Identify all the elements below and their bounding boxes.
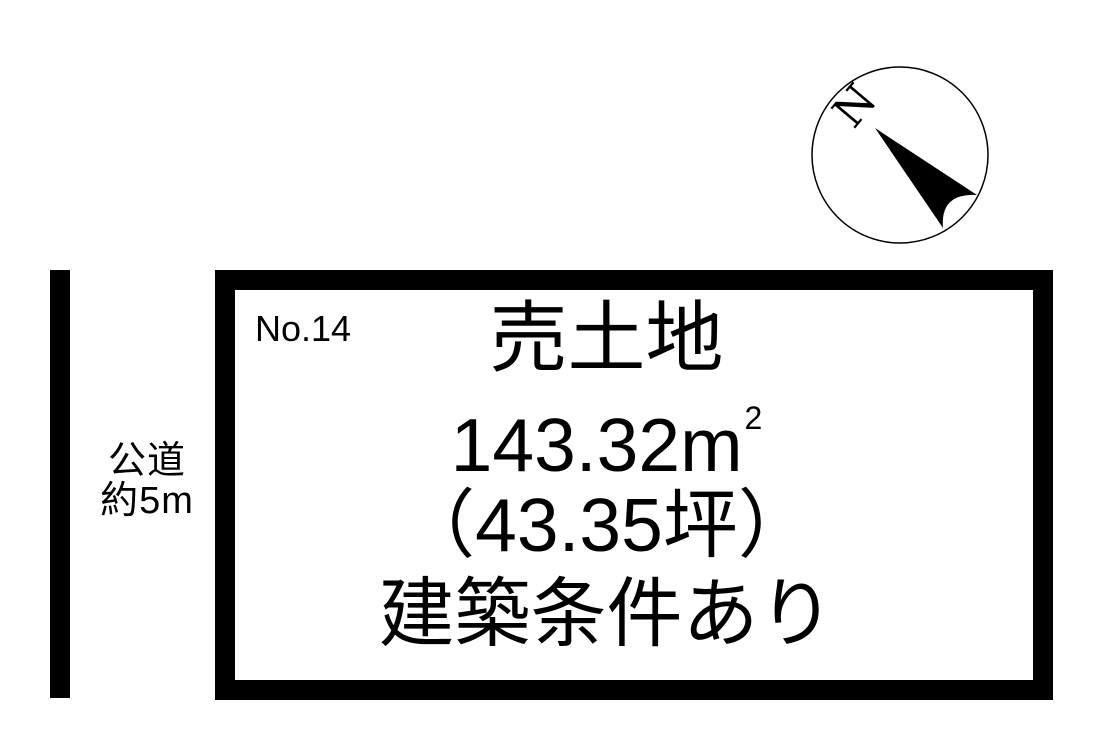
compass-needle: [875, 128, 977, 228]
land-plot-diagram: N 公道 約5m No.14 売土地 143.32m2 （43.35坪） 建築条…: [0, 0, 1104, 732]
parcel-text-block: 売土地 143.32m2 （43.35坪） 建築条件あり: [235, 290, 1033, 680]
area-exponent: 2: [745, 378, 763, 458]
compass-north-icon: N: [808, 63, 992, 247]
parcel-area-tsubo: （43.35坪）: [400, 485, 813, 565]
road-name: 公道: [108, 440, 186, 482]
compass-north-label: N: [823, 75, 887, 137]
road-label: 公道 約5m: [84, 441, 210, 521]
area-value: 143.32: [451, 403, 680, 487]
area-unit: m: [680, 403, 742, 487]
land-parcel: No.14 売土地 143.32m2 （43.35坪） 建築条件あり: [215, 270, 1053, 700]
parcel-area: 143.32m2: [451, 378, 763, 485]
road-bar: [50, 270, 70, 698]
parcel-title: 売土地: [489, 298, 723, 378]
parcel-condition-note: 建築条件あり: [379, 575, 835, 655]
road-width: 約5m: [100, 480, 194, 522]
